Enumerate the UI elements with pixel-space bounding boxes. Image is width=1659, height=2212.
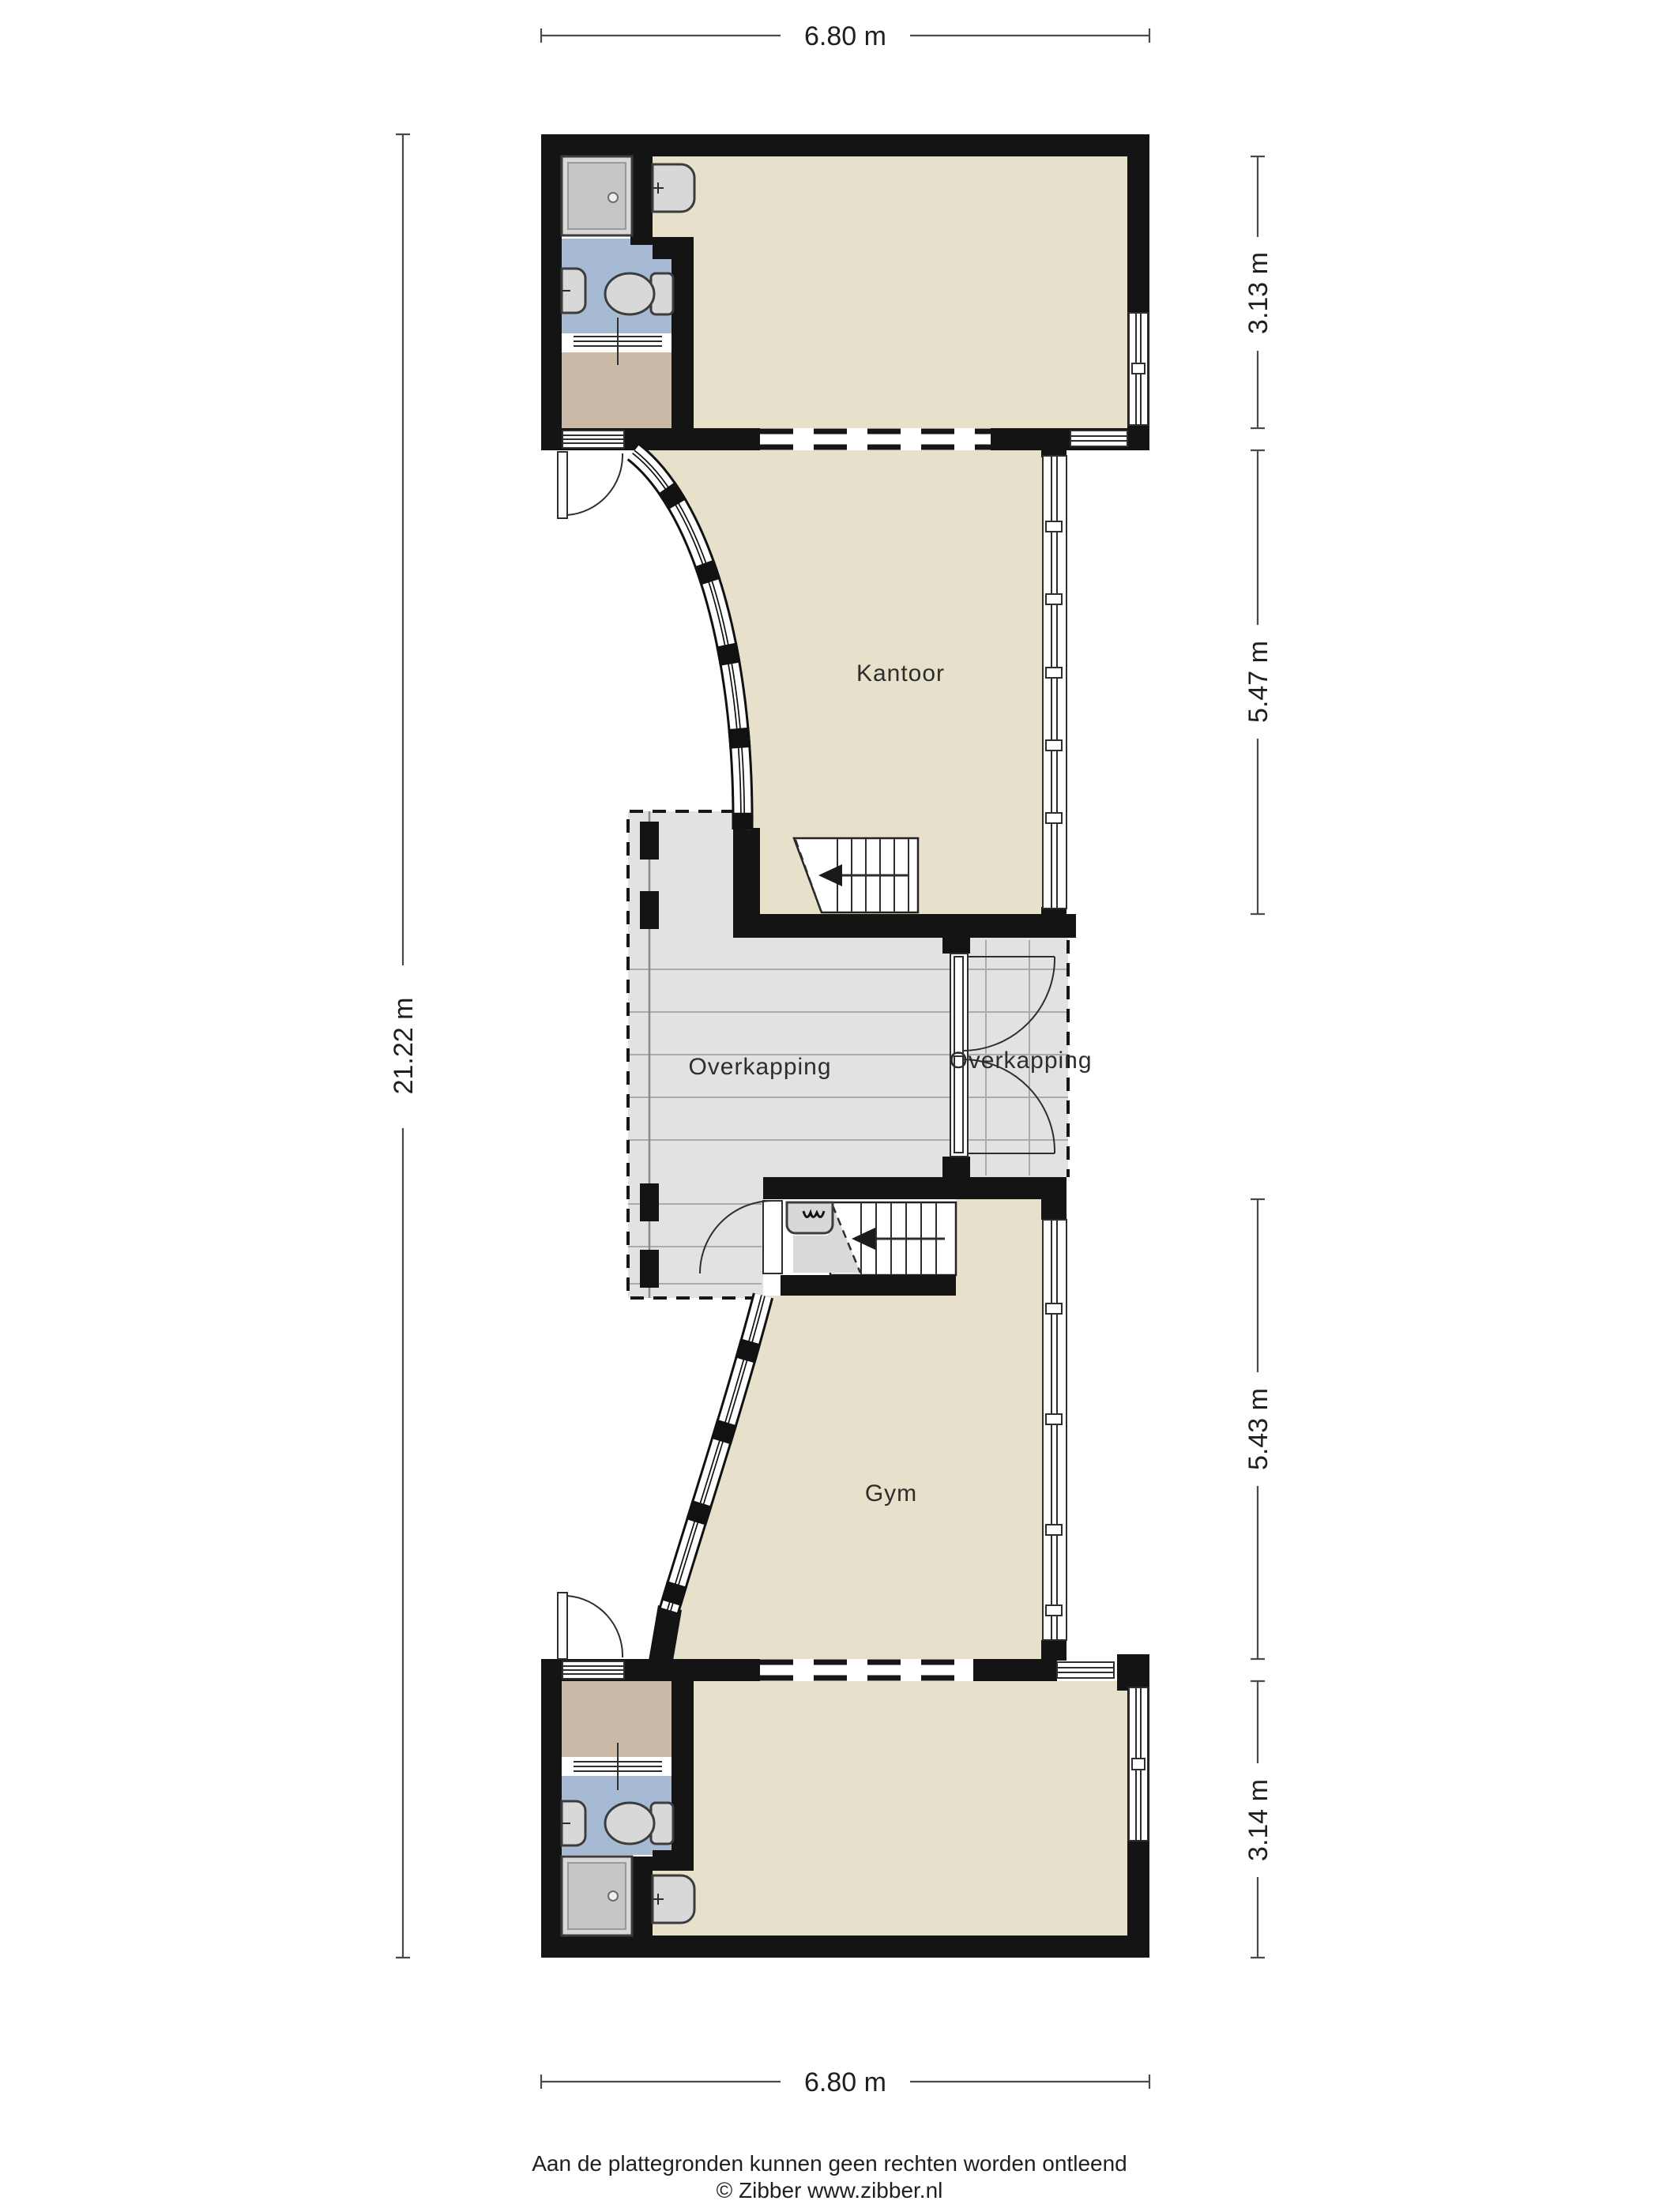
dim-right-3-label: 5.43 m xyxy=(1243,1388,1273,1470)
window-kantoor-right xyxy=(1043,456,1066,908)
door-exterior-top xyxy=(558,431,624,518)
dimension-right-top-block: 3.13 m xyxy=(1243,156,1273,428)
canopy-post xyxy=(640,822,659,860)
wall-kantoor-curve-end xyxy=(733,828,760,916)
door-exterior-gym xyxy=(558,1593,624,1679)
top-room-floor xyxy=(694,156,1127,428)
footer-credit: © Zibber www.zibber.nl xyxy=(717,2178,943,2203)
wall-gym-stairhall-bottom xyxy=(781,1275,956,1296)
small-basin-stairhall xyxy=(787,1202,833,1233)
wall-bottom-left xyxy=(541,1681,562,1958)
dim-top-label: 6.80 m xyxy=(804,21,886,51)
wall-gym-stairhall-top xyxy=(763,1177,1066,1199)
dimension-right-gym: 5.43 m xyxy=(1243,1199,1273,1659)
window-top-room-right xyxy=(1129,313,1148,425)
open-strip-bottom xyxy=(760,1659,973,1681)
wall-gym-bottom-right xyxy=(973,1659,1057,1681)
wall-bottom-outer xyxy=(541,1935,1149,1958)
label-gym: Gym xyxy=(865,1480,917,1507)
dimension-left: 21.22 m xyxy=(389,134,419,1958)
shower-top xyxy=(562,156,632,235)
gym-nook-floor xyxy=(956,1199,1043,1296)
window-bottom-boundary-right xyxy=(1057,1662,1114,1678)
toilet-top xyxy=(605,273,673,314)
dimension-bottom: 6.80 m xyxy=(541,2067,1149,2097)
wall-top-outer xyxy=(541,134,1149,156)
floor-plan-drawing: Kantoor Overkapping Overkapping Gym 6.80… xyxy=(0,0,1659,2212)
dimension-right-bottom-block: 3.14 m xyxy=(1243,1681,1273,1958)
label-overkapping-left: Overkapping xyxy=(688,1054,831,1080)
window-bottom-room-right xyxy=(1129,1687,1148,1841)
washbasin-bottom xyxy=(653,1875,694,1923)
washbasin-top xyxy=(653,164,694,212)
window-gym-right xyxy=(1043,1220,1066,1640)
canopy-post xyxy=(640,891,659,929)
footer-disclaimer: Aan de plattegronden kunnen geen rechten… xyxy=(532,2151,1127,2176)
bottom-room-floor xyxy=(694,1681,1127,1935)
dim-right-4-label: 3.14 m xyxy=(1243,1779,1273,1861)
shower-bottom xyxy=(562,1856,632,1935)
wall-kantoor-bottom xyxy=(733,914,1076,938)
dim-right-1-label: 3.13 m xyxy=(1243,252,1273,334)
canopy-post xyxy=(640,1250,659,1288)
label-overkapping-right: Overkapping xyxy=(949,1048,1092,1074)
dim-right-2-label: 5.47 m xyxy=(1243,641,1273,723)
open-strip-top xyxy=(760,428,991,450)
door-swing-arc xyxy=(567,453,623,515)
small-basin-top xyxy=(562,269,585,313)
wall-top-left xyxy=(541,134,562,450)
floor-plan-page: Kantoor Overkapping Overkapping Gym 6.80… xyxy=(0,0,1659,2212)
dimension-right-kantoor: 5.47 m xyxy=(1243,450,1273,914)
window-top-boundary-right xyxy=(1070,431,1127,446)
footer: Aan de plattegronden kunnen geen rechten… xyxy=(532,2151,1127,2203)
door-swing-arc xyxy=(567,1596,623,1657)
dim-left-label: 21.22 m xyxy=(389,998,419,1095)
small-basin-bottom xyxy=(562,1801,585,1845)
label-kantoor: Kantoor xyxy=(856,660,945,687)
dimension-top: 6.80 m xyxy=(541,21,1149,51)
toilet-bottom xyxy=(605,1803,673,1844)
canopy-post xyxy=(640,1183,659,1221)
dim-bottom-label: 6.80 m xyxy=(804,2067,886,2097)
